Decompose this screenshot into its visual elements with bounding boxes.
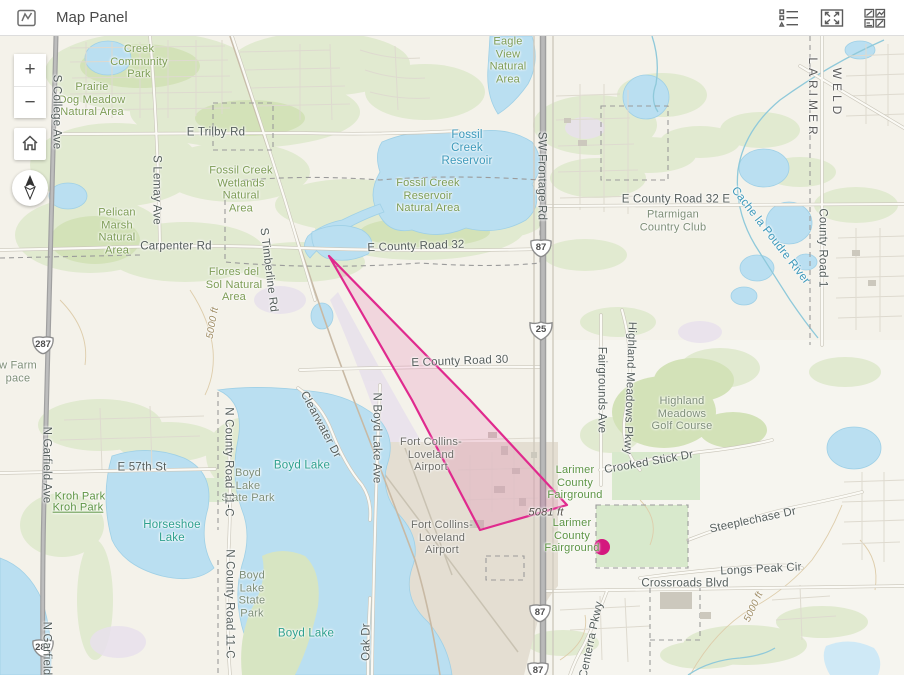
us-route-shield: 287 xyxy=(30,335,56,357)
map-panel-icon xyxy=(16,7,38,29)
legend-list-icon[interactable] xyxy=(772,4,806,32)
interstate-shield: 25 xyxy=(528,320,554,342)
compass-button[interactable] xyxy=(12,170,48,206)
home-icon xyxy=(20,133,40,156)
overlay-graphics xyxy=(0,36,904,675)
compass-north-icon xyxy=(19,174,41,203)
expand-icon[interactable] xyxy=(815,4,849,32)
map-point-marker[interactable] xyxy=(594,539,610,555)
zoom-out-button[interactable]: − xyxy=(14,86,46,118)
overlay-polygon[interactable] xyxy=(329,256,567,530)
shield-number: 287 xyxy=(30,337,56,353)
us-route-shield: 87 xyxy=(527,603,553,625)
panel-title: Map Panel xyxy=(56,9,128,26)
us-route-shield: 287 xyxy=(30,638,56,660)
map-canvas[interactable]: Creek Community ParkPrairie Dog Meadow N… xyxy=(0,36,904,675)
map-panel-widget: Map Panel xyxy=(0,0,904,675)
map-controls: + − xyxy=(14,54,48,206)
us-route-shield: 87 xyxy=(525,661,551,675)
home-button[interactable] xyxy=(14,128,46,160)
shield-number: 87 xyxy=(527,605,553,621)
shield-number: 87 xyxy=(528,240,554,256)
zoom-in-button[interactable]: + xyxy=(14,54,46,86)
quad-layout-icon[interactable] xyxy=(858,4,892,32)
shield-number: 87 xyxy=(525,663,551,675)
shield-number: 25 xyxy=(528,322,554,338)
panel-header: Map Panel xyxy=(0,0,904,36)
us-route-shield: 87 xyxy=(528,238,554,260)
shield-number: 287 xyxy=(30,640,56,656)
